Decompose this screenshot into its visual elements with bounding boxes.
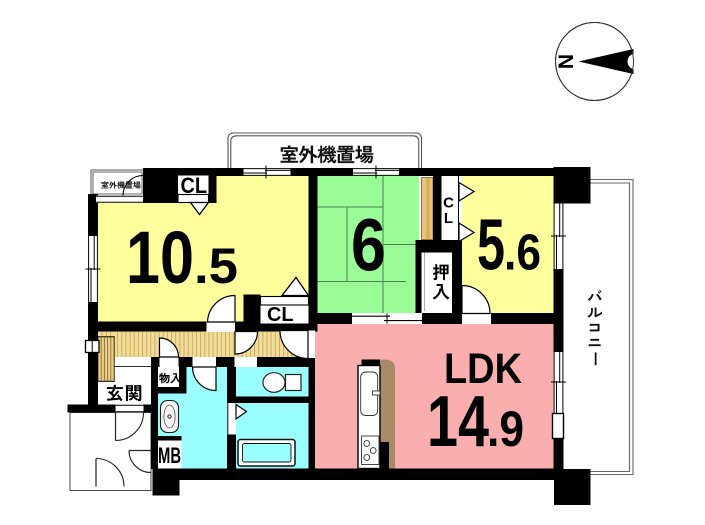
svg-text:10: 10 — [126, 216, 194, 299]
svg-text:.6: .6 — [504, 224, 541, 281]
svg-text:6: 6 — [351, 204, 386, 287]
svg-text:CL: CL — [181, 173, 208, 198]
svg-text:.5: .5 — [194, 238, 238, 294]
svg-text:MB: MB — [158, 443, 181, 468]
svg-text:14: 14 — [427, 382, 489, 462]
svg-text:N: N — [555, 54, 578, 69]
svg-text:C: C — [443, 195, 454, 212]
svg-text:CL: CL — [267, 304, 294, 326]
svg-text:5: 5 — [477, 206, 505, 286]
svg-text:L: L — [444, 210, 453, 227]
svg-text:.9: .9 — [487, 401, 524, 457]
